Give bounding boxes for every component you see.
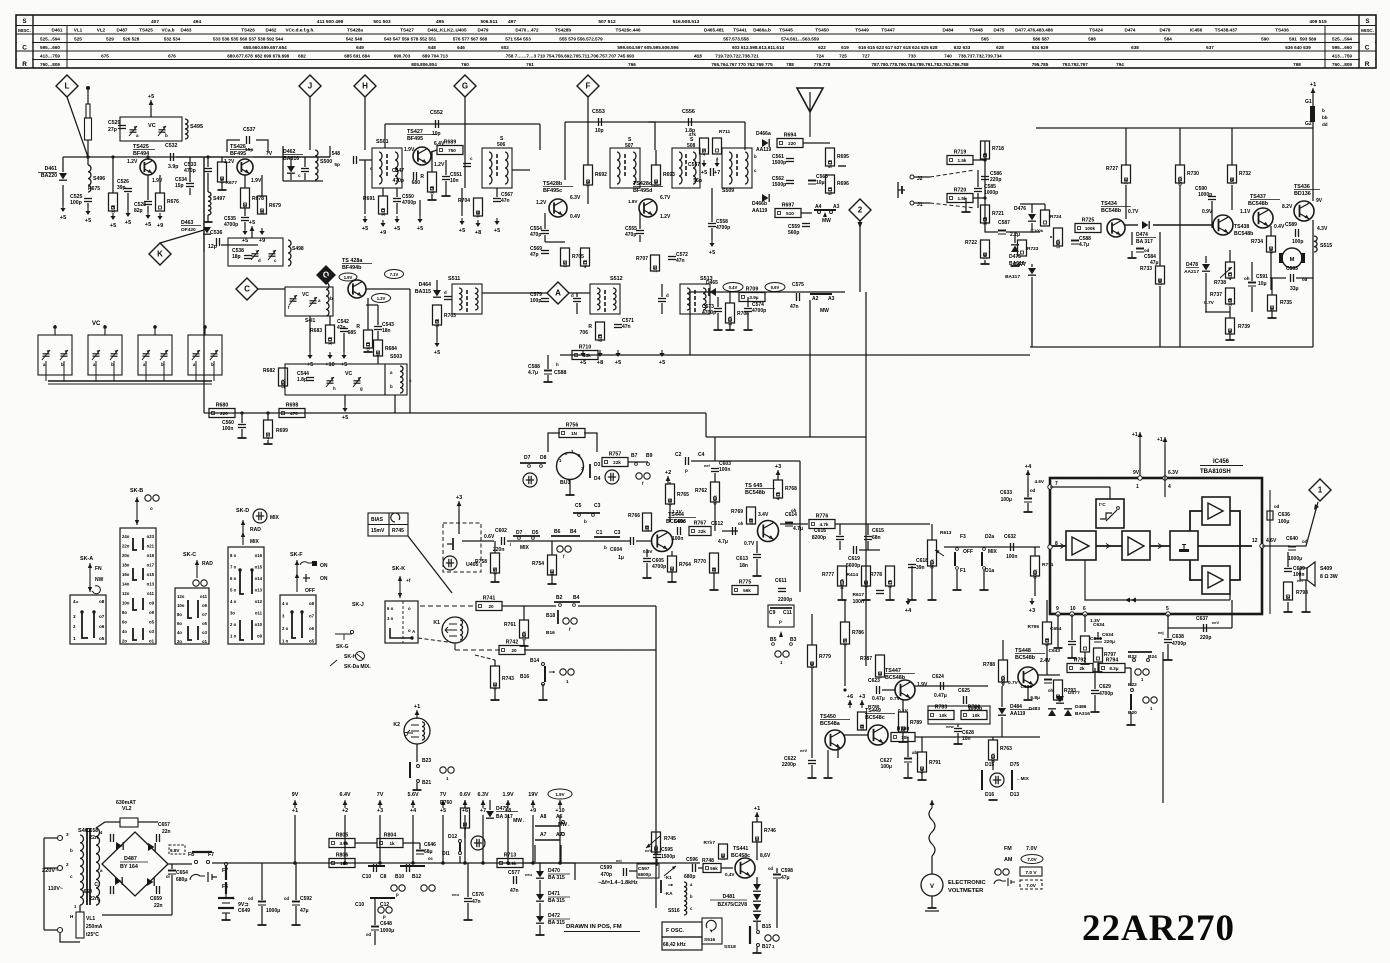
svg-text:1: 1 — [1318, 486, 1323, 495]
svg-text:R689: R689 — [444, 140, 457, 146]
svg-text:595…660: 595…660 — [40, 45, 60, 50]
svg-text:413…759: 413…759 — [40, 54, 60, 59]
svg-text:7.1V: 7.1V — [390, 272, 399, 277]
svg-text:R720: R720 — [954, 188, 967, 194]
svg-text:C638: C638 — [1172, 634, 1184, 640]
svg-text:S503: S503 — [390, 354, 402, 360]
svg-text:7.0V: 7.0V — [1027, 857, 1037, 862]
svg-text:K: K — [157, 250, 163, 259]
svg-text:630mAT: 630mAT — [116, 800, 137, 806]
svg-text:0.7V: 0.7V — [1008, 680, 1019, 686]
svg-text:413: 413 — [694, 54, 702, 59]
svg-text:SK-C: SK-C — [183, 552, 196, 558]
svg-text:1.3V: 1.3V — [377, 296, 386, 301]
svg-text:R783: R783 — [935, 705, 948, 711]
svg-text:C634: C634 — [1093, 622, 1105, 628]
svg-text:82p: 82p — [134, 208, 143, 214]
svg-text:SK-F: SK-F — [290, 552, 303, 558]
svg-text:F3: F3 — [960, 534, 966, 540]
svg-text:R745: R745 — [392, 528, 404, 534]
svg-text:R788: R788 — [983, 662, 995, 668]
svg-text:680.677.678: 680.677.678 — [227, 54, 253, 59]
svg-text:47n: 47n — [676, 258, 685, 264]
svg-text:R725: R725 — [1082, 218, 1095, 224]
svg-text:100n: 100n — [853, 599, 864, 605]
svg-text:R791: R791 — [929, 760, 941, 766]
svg-text:10k: 10k — [972, 713, 980, 718]
svg-text:R789: R789 — [910, 720, 922, 726]
svg-text:D8: D8 — [540, 455, 547, 461]
svg-text:D3: D3 — [594, 462, 601, 468]
svg-text:t25°C: t25°C — [86, 932, 99, 938]
svg-text:507: 507 — [625, 143, 634, 149]
svg-text:675: 675 — [101, 54, 109, 59]
svg-text:R722: R722 — [965, 240, 977, 246]
svg-text:47μ: 47μ — [300, 908, 309, 914]
svg-text:622: 622 — [818, 45, 826, 50]
svg-text:j: j — [509, 541, 511, 546]
svg-text:532 534: 532 534 — [164, 37, 181, 42]
svg-text:+5: +5 — [362, 226, 368, 232]
svg-text:6.4V: 6.4V — [339, 792, 350, 798]
svg-text:R677: R677 — [226, 180, 238, 186]
svg-text:1: 1 — [73, 636, 76, 641]
svg-text:676: 676 — [168, 54, 176, 59]
svg-text:10o: 10o — [122, 601, 130, 606]
svg-text:B23: B23 — [422, 758, 431, 764]
svg-text:1 o: 1 o — [230, 634, 237, 639]
svg-text:D474: D474 — [1125, 28, 1136, 33]
svg-text:C602: C602 — [495, 528, 507, 534]
svg-text:D483: D483 — [1029, 706, 1041, 712]
svg-text:C649: C649 — [238, 908, 250, 914]
svg-text:4: 4 — [1168, 484, 1171, 490]
svg-text:B14: B14 — [530, 658, 539, 664]
svg-text:DI1: DI1 — [442, 851, 450, 857]
svg-text:+5: +5 — [125, 220, 131, 226]
svg-text:0.47μ: 0.47μ — [934, 693, 947, 699]
svg-text:BC548b: BC548b — [1101, 208, 1122, 214]
svg-text:b: b — [330, 296, 333, 301]
svg-text:4700p: 4700p — [1099, 691, 1113, 697]
svg-text:NW: NW — [95, 577, 104, 583]
svg-text:3.9μ: 3.9μ — [749, 295, 758, 300]
svg-text:eew: eew — [946, 724, 954, 729]
svg-text:+8: +8 — [475, 230, 481, 236]
svg-text:+6: +6 — [462, 808, 468, 814]
svg-text:D461: D461 — [45, 166, 58, 172]
svg-text:o6: o6 — [99, 624, 105, 629]
svg-text:IC456: IC456 — [1190, 28, 1203, 33]
svg-text:R780: R780 — [868, 704, 880, 710]
svg-text:+5: +5 — [494, 228, 500, 234]
svg-text:SK-K: SK-K — [392, 566, 405, 572]
svg-text:4700p: 4700p — [716, 225, 730, 231]
svg-text:MIX: MIX — [250, 539, 260, 545]
svg-text:407: 407 — [151, 19, 159, 25]
svg-text:dd: dd — [1322, 122, 1328, 127]
svg-text:ON: ON — [320, 563, 328, 569]
svg-text:o23: o23 — [147, 534, 155, 539]
svg-text:+5: +5 — [659, 360, 665, 366]
svg-text:VL2: VL2 — [97, 28, 106, 33]
svg-text:R794: R794 — [1106, 658, 1119, 664]
svg-text:+5: +5 — [580, 360, 586, 366]
svg-text:o6: o6 — [309, 626, 315, 631]
svg-text:C654: C654 — [176, 870, 188, 876]
svg-text:C623: C623 — [868, 678, 880, 684]
svg-text:R676: R676 — [167, 199, 179, 205]
svg-text:o8: o8 — [309, 601, 315, 606]
svg-text:497: 497 — [508, 19, 516, 25]
svg-text:SK-Da MIX.: SK-Da MIX. — [344, 664, 371, 670]
svg-text:RAD: RAD — [202, 561, 213, 567]
svg-text:R766: R766 — [628, 513, 640, 519]
svg-text:C: C — [94, 882, 98, 888]
svg-text:MW←: MW← — [513, 818, 527, 824]
svg-text:B15: B15 — [762, 924, 771, 930]
svg-text:+5: +5 — [60, 215, 66, 221]
svg-text:0.7V: 0.7V — [1128, 209, 1139, 215]
svg-text:47n: 47n — [790, 304, 799, 310]
svg-text:+3: +3 — [859, 694, 865, 700]
svg-text:1000p: 1000p — [1198, 192, 1212, 198]
svg-text:o5: o5 — [202, 621, 208, 626]
svg-text:o9: o9 — [149, 601, 155, 606]
svg-text:0.9V: 0.9V — [1202, 209, 1213, 215]
svg-text:0.4V: 0.4V — [570, 214, 581, 220]
svg-text:18o: 18o — [122, 563, 130, 568]
svg-text:B16: B16 — [546, 630, 555, 636]
svg-text:od: od — [768, 866, 774, 871]
svg-text:A3: A3 — [828, 296, 835, 302]
svg-text:g: g — [360, 386, 363, 391]
svg-text:R711: R711 — [719, 129, 731, 135]
svg-text:16o: 16o — [122, 572, 130, 577]
svg-text:BA 315: BA 315 — [548, 875, 565, 881]
svg-text:D478: D478 — [1160, 28, 1171, 33]
svg-text:R707: R707 — [636, 256, 648, 262]
svg-text:S516: S516 — [668, 908, 680, 914]
svg-text:B3: B3 — [790, 637, 797, 643]
svg-text:od: od — [248, 896, 254, 901]
svg-text:7.0 V: 7.0 V — [1025, 870, 1037, 876]
svg-text:oh: oh — [738, 521, 744, 526]
svg-text:56k: 56k — [710, 866, 718, 871]
svg-text:506.511: 506.511 — [480, 19, 497, 25]
svg-text:6.7V: 6.7V — [660, 195, 671, 201]
svg-text:22k: 22k — [698, 529, 706, 534]
svg-text:h: h — [556, 362, 559, 367]
svg-text:VC: VC — [92, 321, 101, 327]
svg-text:+2: +2 — [665, 470, 671, 476]
svg-text:590: 590 — [1261, 37, 1269, 42]
svg-text:d: d — [444, 290, 447, 295]
svg-text:1.2V: 1.2V — [536, 200, 547, 206]
svg-text:4700p: 4700p — [752, 308, 766, 314]
svg-text:724: 724 — [816, 54, 824, 59]
svg-text:14o: 14o — [122, 582, 130, 587]
svg-text:47k: 47k — [689, 132, 697, 137]
svg-text:100μ: 100μ — [1278, 519, 1289, 525]
svg-text:R683: R683 — [310, 328, 322, 334]
svg-text:ON: ON — [320, 576, 328, 582]
svg-text:SK-D: SK-D — [236, 508, 249, 514]
svg-text:D465.481: D465.481 — [704, 28, 724, 33]
svg-text:D486: D486 — [1075, 704, 1087, 710]
svg-text:470p: 470p — [601, 872, 612, 878]
svg-text:D1a: D1a — [985, 568, 994, 574]
svg-text:R763: R763 — [1000, 746, 1012, 752]
svg-text:586 587: 586 587 — [1033, 37, 1050, 42]
svg-text:TS438.437: TS438.437 — [1215, 28, 1238, 33]
svg-text:A: A — [555, 289, 561, 298]
svg-text:h: h — [333, 386, 336, 391]
svg-text:632 633: 632 633 — [954, 45, 971, 50]
svg-text:o: o — [408, 606, 411, 611]
svg-text:8.2V: 8.2V — [1282, 204, 1293, 210]
svg-text:BF495c: BF495c — [543, 188, 562, 194]
svg-text:2: 2 — [73, 624, 76, 629]
svg-text:0.47μ: 0.47μ — [872, 696, 885, 702]
svg-text:R756: R756 — [566, 423, 579, 429]
svg-text:100μ: 100μ — [881, 764, 892, 770]
svg-text:4.6V: 4.6V — [1266, 538, 1277, 544]
svg-text:o5: o5 — [99, 636, 105, 641]
svg-text:C: C — [244, 285, 250, 294]
svg-text:BC548c: BC548c — [865, 715, 885, 721]
svg-text:TS438: TS438 — [1234, 224, 1249, 230]
svg-text:10μ: 10μ — [1258, 281, 1267, 287]
svg-text:0.6V: 0.6V — [459, 792, 470, 798]
svg-text:R721: R721 — [992, 211, 1004, 217]
svg-text:R806: R806 — [336, 853, 349, 859]
svg-text:D487: D487 — [117, 28, 128, 33]
svg-text:b: b — [604, 545, 607, 550]
svg-text:eeu: eeu — [452, 892, 459, 897]
svg-text:R754: R754 — [532, 561, 544, 567]
svg-text:9V: 9V — [1316, 198, 1323, 204]
svg-text:690.703: 690.703 — [394, 54, 411, 59]
svg-text:ol: ol — [166, 874, 170, 879]
svg-text:4o: 4o — [177, 630, 182, 635]
svg-text:682: 682 — [298, 54, 306, 59]
svg-text:1.2V: 1.2V — [127, 159, 138, 165]
svg-text:C5: C5 — [575, 503, 582, 509]
svg-text:+5: +5 — [341, 362, 347, 368]
svg-text:oh: oh — [1244, 276, 1250, 281]
svg-text:765.764.767 770 762 769 775: 765.764.767 770 762 769 775 — [711, 62, 773, 67]
svg-text:o13: o13 — [255, 588, 263, 593]
svg-text:TS427: TS427 — [400, 28, 414, 33]
svg-text:B6: B6 — [554, 529, 561, 535]
svg-text:738.737.732.739.734: 738.737.732.739.734 — [958, 54, 1002, 59]
svg-text:R768: R768 — [785, 486, 797, 492]
svg-text:22k: 22k — [613, 460, 621, 465]
svg-text:D475: D475 — [1009, 254, 1021, 260]
svg-text:o13: o13 — [147, 582, 155, 587]
svg-text:760: 760 — [461, 62, 469, 67]
svg-text:p: p — [685, 468, 688, 473]
svg-text:D479: D479 — [478, 28, 489, 33]
svg-text:R764: R764 — [679, 562, 691, 568]
svg-text:C612: C612 — [711, 521, 723, 527]
svg-text:VC: VC — [345, 371, 352, 377]
svg-text:BA 315: BA 315 — [548, 898, 565, 904]
svg-text:od: od — [1144, 248, 1150, 253]
svg-text:R: R — [1365, 61, 1370, 68]
svg-text:8o: 8o — [122, 610, 127, 615]
svg-text:727: 727 — [862, 54, 870, 59]
svg-text:10n: 10n — [450, 178, 459, 184]
svg-text:R719: R719 — [954, 150, 967, 156]
svg-text:C636: C636 — [1278, 512, 1290, 518]
svg-text:BY 164: BY 164 — [120, 864, 138, 870]
svg-text:1.9V: 1.9V — [555, 792, 564, 797]
svg-text:R793: R793 — [1064, 688, 1076, 694]
svg-text:MW←: MW← — [558, 822, 572, 828]
svg-text:6: 6 — [1083, 606, 1086, 612]
svg-text:C643: C643 — [1049, 648, 1061, 654]
svg-text:C: C — [22, 45, 27, 52]
svg-text:758 7……7…3 710 754.756.692.705: 758 7……7…3 710 754.756.692.705.711.706.7… — [506, 54, 635, 59]
svg-text:12o: 12o — [122, 591, 130, 596]
svg-text:R762: R762 — [695, 488, 707, 494]
svg-text:BF495: BF495 — [230, 151, 246, 157]
svg-text:0.7V: 0.7V — [1204, 300, 1215, 306]
svg-text:D470: D470 — [548, 868, 560, 874]
svg-text:A7: A7 — [540, 832, 547, 838]
svg-text:7V: 7V — [266, 151, 273, 157]
svg-text:C587: C587 — [998, 220, 1010, 226]
svg-text:27p: 27p — [108, 127, 117, 133]
svg-text:G: G — [462, 82, 468, 91]
svg-text:BC548b: BC548b — [1234, 231, 1253, 237]
svg-text:4.7k: 4.7k — [820, 522, 829, 527]
svg-text:0,4V: 0,4V — [725, 872, 735, 877]
svg-text:470p: 470p — [393, 178, 404, 184]
svg-text:FN: FN — [95, 566, 102, 572]
svg-text:b: b — [690, 894, 693, 899]
svg-text:D471: D471 — [548, 891, 560, 897]
svg-text:OF420: OF420 — [181, 227, 196, 233]
svg-text:R695: R695 — [837, 154, 849, 160]
svg-text:R786: R786 — [968, 705, 981, 711]
svg-text:576 577 567 568: 576 577 567 568 — [453, 37, 488, 42]
svg-text:1.2V: 1.2V — [434, 162, 445, 168]
svg-text:494: 494 — [193, 19, 201, 25]
svg-text:33μ: 33μ — [1290, 286, 1299, 292]
svg-text:8 o: 8 o — [230, 553, 237, 558]
svg-text:+4: +4 — [1025, 464, 1032, 470]
svg-text:R675: R675 — [88, 186, 100, 192]
svg-text:MW: MW — [820, 308, 829, 314]
svg-text:413…759: 413…759 — [1332, 54, 1352, 59]
svg-text:+5: +5 — [434, 350, 440, 356]
svg-text:o16: o16 — [255, 553, 263, 558]
svg-text:b: b — [1322, 108, 1325, 113]
svg-text:oh: oh — [791, 508, 797, 513]
svg-text:R613: R613 — [940, 530, 952, 536]
svg-text:o10: o10 — [255, 622, 263, 627]
svg-text:R737: R737 — [1210, 292, 1222, 298]
svg-text:495: 495 — [436, 19, 444, 25]
svg-text:+7: +7 — [480, 808, 486, 814]
svg-text:C577: C577 — [508, 870, 520, 876]
svg-text:o9: o9 — [257, 634, 263, 639]
svg-text:220: 220 — [220, 411, 228, 416]
svg-text:1: 1 — [566, 679, 569, 684]
svg-text:p: p — [383, 914, 386, 919]
svg-text:4700p: 4700p — [702, 310, 716, 316]
svg-text:+9: +9 — [259, 238, 265, 244]
svg-text:10p: 10p — [432, 131, 441, 137]
svg-text:180: 180 — [340, 861, 348, 866]
svg-text:733: 733 — [908, 54, 916, 59]
svg-text:AA119: AA119 — [756, 147, 772, 153]
svg-text:4700p: 4700p — [224, 222, 238, 228]
svg-text:R775: R775 — [739, 580, 752, 586]
svg-text:R758: R758 — [475, 559, 487, 565]
svg-text:4 o: 4 o — [230, 599, 237, 604]
svg-text:56k: 56k — [743, 588, 751, 593]
svg-text:oh: oh — [1048, 688, 1054, 693]
svg-text:d: d — [571, 293, 574, 298]
svg-text:649: 649 — [356, 45, 364, 50]
svg-text:◦K1: ◦K1 — [664, 875, 672, 881]
svg-text:+5: +5 — [148, 94, 154, 100]
svg-text:R705: R705 — [572, 254, 584, 260]
svg-text:B22: B22 — [1128, 682, 1137, 688]
svg-text:2: 2 — [858, 206, 863, 215]
svg-text:c: c — [298, 173, 301, 178]
svg-text:R739: R739 — [1238, 324, 1250, 330]
svg-text:7V: 7V — [440, 792, 447, 798]
svg-text:2: 2 — [66, 862, 69, 867]
svg-text:4o: 4o — [122, 629, 127, 634]
svg-text:o1: o1 — [149, 639, 155, 644]
svg-text:R804: R804 — [384, 833, 397, 839]
svg-text:C10: C10 — [355, 902, 364, 908]
svg-text:250mA: 250mA — [86, 924, 103, 930]
svg-text:BC548b: BC548b — [745, 490, 766, 496]
svg-text:6.3V: 6.3V — [477, 792, 488, 798]
svg-text:eeu: eeu — [525, 872, 532, 877]
svg-text:+5: +5 — [701, 170, 707, 176]
svg-text:C3: C3 — [594, 503, 601, 509]
svg-text:+9: +9 — [380, 230, 386, 236]
svg-text:D463: D463 — [181, 28, 192, 33]
svg-text:22n: 22n — [162, 829, 171, 835]
svg-text:4.7μ: 4.7μ — [793, 526, 803, 532]
svg-text:−Δf=1.4−1.8kHz: −Δf=1.4−1.8kHz — [598, 880, 638, 886]
svg-text:10: 10 — [1070, 606, 1076, 612]
svg-text:TS424: TS424 — [1089, 28, 1103, 33]
svg-text:5.6V: 5.6V — [407, 792, 418, 798]
svg-text:SK-G: SK-G — [336, 644, 349, 650]
svg-text:oc: oc — [428, 856, 434, 861]
svg-text:220p: 220p — [1200, 635, 1211, 641]
svg-text:S: S — [1365, 19, 1369, 25]
svg-text:+3: +3 — [1029, 608, 1035, 614]
svg-text:R734: R734 — [1251, 239, 1263, 245]
svg-text:o5: o5 — [309, 639, 315, 644]
svg-text:B12: B12 — [412, 874, 421, 880]
svg-text:R765: R765 — [677, 492, 689, 498]
svg-text:R680: R680 — [216, 403, 229, 409]
svg-text:761: 761 — [526, 62, 534, 67]
svg-text:+5: +5 — [85, 218, 91, 224]
